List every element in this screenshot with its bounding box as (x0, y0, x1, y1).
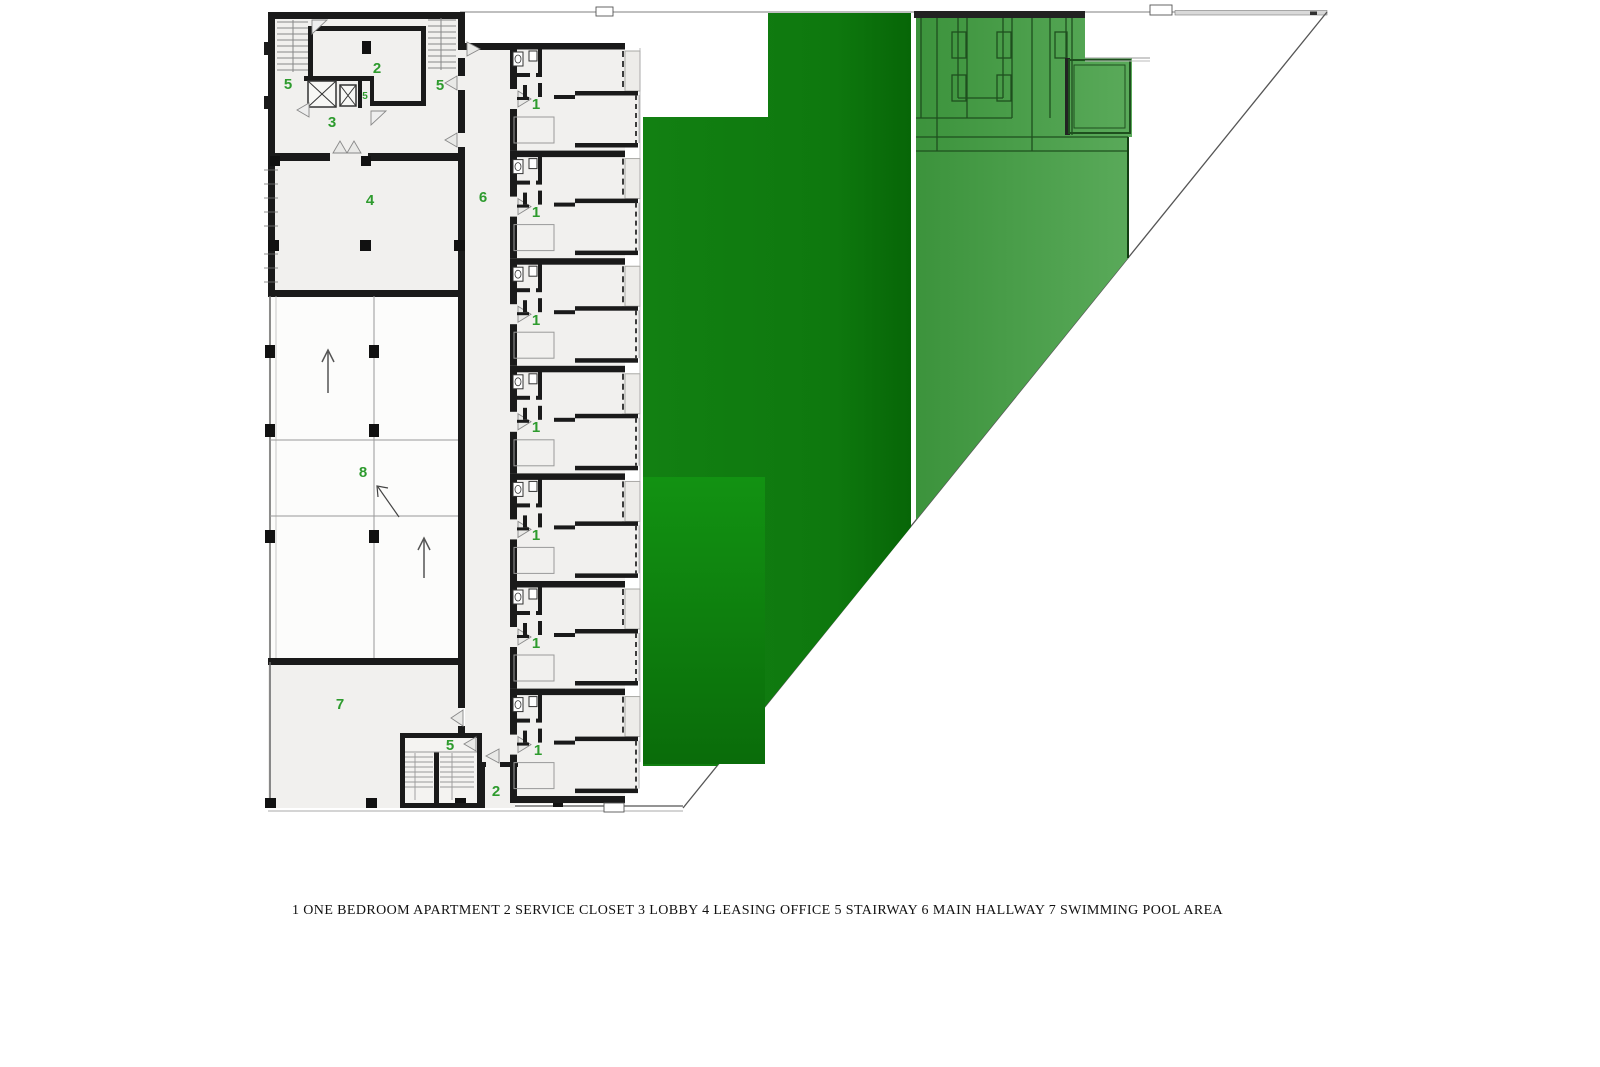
stairway-top-left-treads (277, 20, 308, 72)
room-label-apartment: 1 (532, 96, 540, 113)
room-label-service-closet-bottom: 2 (492, 783, 500, 800)
stairway-top-right-treads (428, 18, 456, 70)
landscape-green-courtyard (643, 477, 765, 764)
room-label-stairway-top-left: 5 (284, 76, 292, 93)
room-label-service-closet-top: 2 (373, 60, 381, 77)
room-label-ramp-area: 8 (359, 464, 367, 481)
room-label-apartment: 1 (532, 527, 540, 544)
room-label-swimming-pool: 7 (336, 696, 344, 713)
landscape-green-roof-terrace (914, 11, 1150, 520)
room-label-lobby: 3 (328, 114, 336, 131)
room-label-apartment: 1 (532, 204, 540, 221)
room-label-main-hallway: 6 (479, 189, 487, 206)
column (362, 41, 371, 54)
floor-plan-page: 5 2 5 5 3 4 6 8 7 5 2 1 1 1 1 1 1 1 1 ON… (0, 0, 1600, 1067)
room-label-stairway-top-right: 5 (436, 77, 444, 94)
room-label-stairway-core: 5 (362, 91, 368, 102)
room-label-apartment: 1 (532, 635, 540, 652)
room-label-apartment: 1 (532, 312, 540, 329)
room-label-apartment: 1 (532, 419, 540, 436)
room-label-leasing-office: 4 (366, 192, 375, 209)
legend-text: 1 ONE BEDROOM APARTMENT 2 SERVICE CLOSET… (292, 903, 1272, 919)
room-label-stairway-bottom: 5 (446, 737, 454, 754)
room-label-apartment: 1 (534, 742, 542, 759)
apartment-column (510, 43, 640, 803)
